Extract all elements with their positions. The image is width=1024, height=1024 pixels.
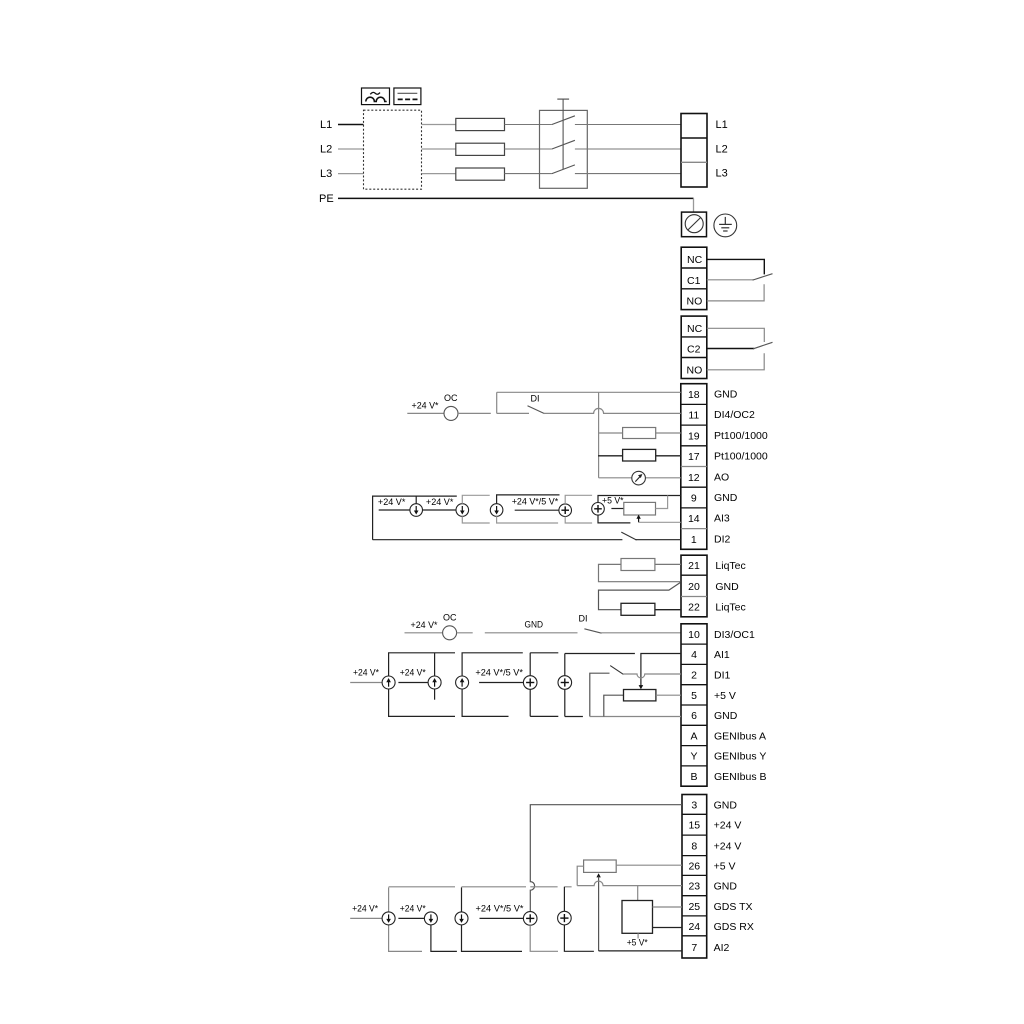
svg-text:GND: GND — [715, 581, 739, 593]
svg-text:GND: GND — [714, 881, 738, 893]
svg-text:NO: NO — [687, 364, 703, 376]
svg-text:DI2: DI2 — [714, 533, 731, 545]
svg-text:+24 V*: +24 V* — [411, 620, 438, 630]
svg-text:3: 3 — [691, 799, 697, 811]
svg-text:25: 25 — [688, 901, 700, 913]
svg-text:AI1: AI1 — [714, 649, 730, 661]
svg-text:GND: GND — [714, 389, 738, 401]
svg-text:8: 8 — [691, 840, 697, 852]
svg-text:L1: L1 — [716, 119, 728, 131]
svg-text:+24 V*/5 V*: +24 V*/5 V* — [476, 904, 524, 914]
svg-text:+24 V*/5 V*: +24 V*/5 V* — [475, 668, 523, 678]
svg-text:B: B — [690, 771, 697, 783]
svg-text:DI3/OC1: DI3/OC1 — [714, 629, 755, 641]
svg-text:+5 V: +5 V — [714, 861, 736, 873]
svg-text:L3: L3 — [716, 168, 728, 180]
svg-text:NC: NC — [687, 323, 703, 335]
svg-text:18: 18 — [688, 389, 700, 401]
svg-text:PE: PE — [319, 193, 334, 205]
svg-text:5: 5 — [691, 690, 697, 702]
svg-text:GDS RX: GDS RX — [714, 921, 754, 933]
svg-text:Y: Y — [690, 751, 697, 763]
svg-text:AI3: AI3 — [714, 513, 730, 525]
svg-text:+24 V: +24 V — [714, 840, 742, 852]
svg-text:24: 24 — [688, 921, 700, 933]
svg-text:+24 V*: +24 V* — [353, 668, 379, 678]
svg-text:GENIbus Y: GENIbus Y — [714, 751, 766, 763]
svg-text:26: 26 — [688, 861, 700, 873]
svg-text:L2: L2 — [716, 144, 728, 156]
svg-text:+24 V*: +24 V* — [426, 497, 454, 507]
svg-text:DI: DI — [531, 394, 540, 404]
svg-text:1: 1 — [691, 534, 697, 546]
svg-text:OC: OC — [443, 613, 457, 623]
svg-text:GND: GND — [525, 620, 544, 630]
svg-text:DI4/OC2: DI4/OC2 — [714, 409, 755, 421]
svg-text:7: 7 — [691, 942, 697, 954]
svg-text:L1: L1 — [320, 119, 332, 131]
svg-text:GND: GND — [714, 799, 738, 811]
svg-text:+24 V*/5 V*: +24 V*/5 V* — [512, 497, 559, 507]
svg-text:Pt100/1000: Pt100/1000 — [714, 451, 768, 463]
svg-text:+24 V*: +24 V* — [400, 668, 426, 678]
svg-text:+24 V*: +24 V* — [378, 497, 406, 507]
svg-text:4: 4 — [691, 649, 697, 661]
svg-text:+24 V*: +24 V* — [352, 904, 378, 914]
svg-text:DI: DI — [579, 614, 588, 624]
svg-text:A: A — [690, 730, 697, 742]
svg-text:AO: AO — [714, 471, 729, 483]
svg-text:+24 V*: +24 V* — [412, 401, 439, 411]
svg-text:L2: L2 — [320, 144, 332, 156]
svg-text:14: 14 — [688, 513, 700, 525]
svg-text:17: 17 — [688, 451, 700, 463]
svg-text:21: 21 — [688, 560, 700, 572]
svg-text:DI1: DI1 — [714, 670, 731, 682]
svg-text:NO: NO — [687, 296, 703, 308]
svg-text:22: 22 — [688, 602, 700, 614]
svg-text:23: 23 — [688, 881, 700, 893]
svg-text:LiqTec: LiqTec — [715, 602, 745, 614]
svg-text:+24 V: +24 V — [714, 820, 742, 832]
svg-text:20: 20 — [688, 581, 700, 593]
svg-text:GDS TX: GDS TX — [714, 901, 753, 913]
svg-text:9: 9 — [691, 493, 697, 505]
svg-text:+5 V*: +5 V* — [627, 938, 648, 948]
svg-text:L3: L3 — [320, 168, 332, 180]
svg-text:AI2: AI2 — [714, 942, 730, 954]
svg-text:C1: C1 — [687, 275, 701, 287]
svg-text:+5 V: +5 V — [714, 690, 736, 702]
svg-text:+5 V*: +5 V* — [602, 496, 624, 506]
svg-text:GND: GND — [714, 710, 738, 722]
svg-text:C2: C2 — [687, 344, 701, 356]
svg-text:2: 2 — [691, 670, 697, 682]
svg-text:OC: OC — [444, 393, 458, 403]
svg-text:LiqTec: LiqTec — [715, 560, 745, 572]
svg-text:GENIbus B: GENIbus B — [714, 771, 767, 783]
svg-text:19: 19 — [688, 430, 700, 442]
svg-text:GND: GND — [714, 492, 738, 504]
svg-text:10: 10 — [688, 629, 700, 641]
svg-text:Pt100/1000: Pt100/1000 — [714, 430, 768, 442]
svg-text:GENIbus A: GENIbus A — [714, 730, 766, 742]
svg-text:6: 6 — [691, 710, 697, 722]
svg-text:12: 12 — [688, 472, 700, 484]
svg-text:NC: NC — [687, 254, 703, 266]
svg-text:11: 11 — [688, 410, 699, 422]
svg-text:15: 15 — [688, 820, 700, 832]
svg-text:+24 V*: +24 V* — [400, 904, 426, 914]
